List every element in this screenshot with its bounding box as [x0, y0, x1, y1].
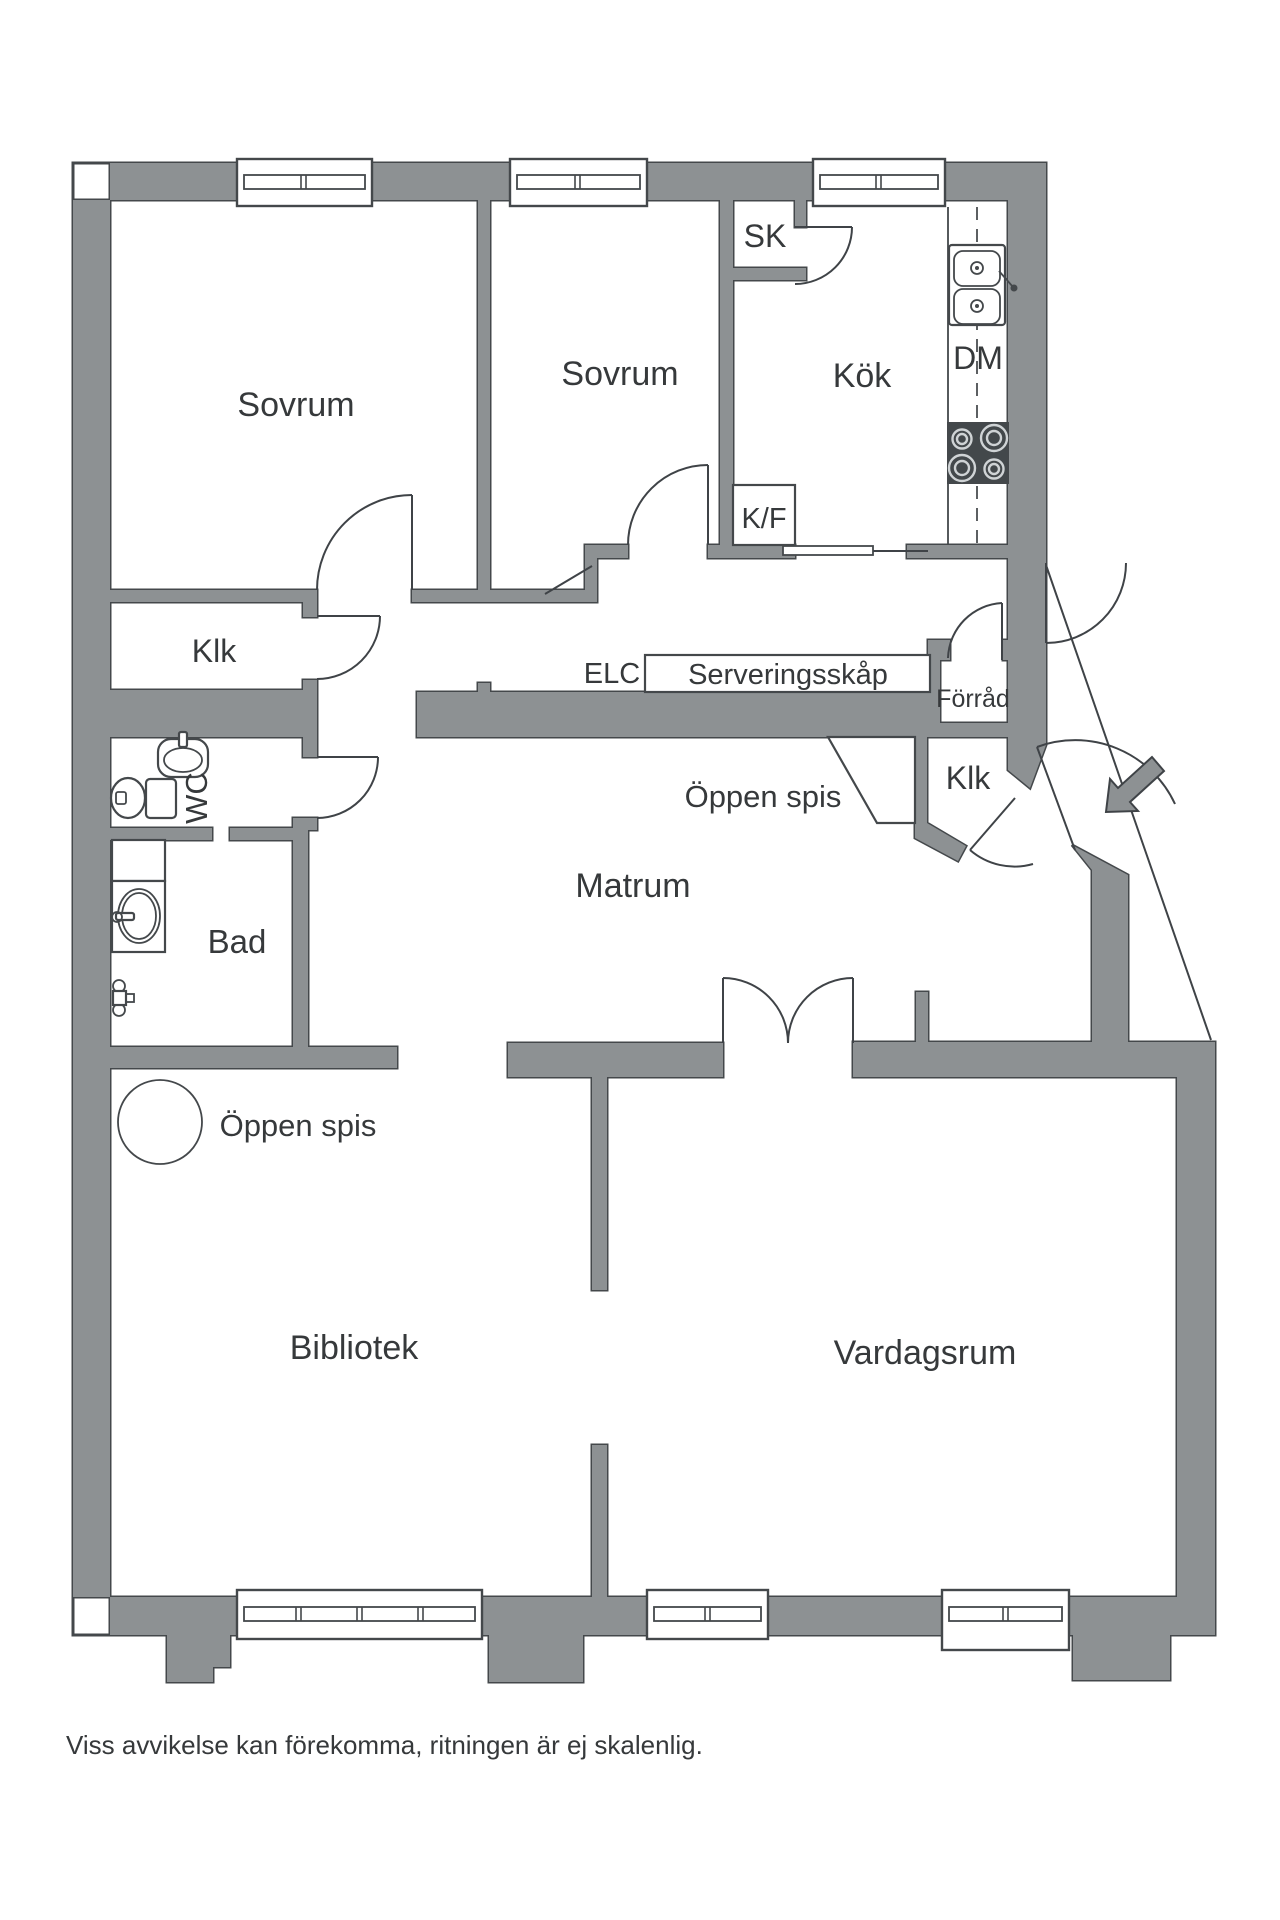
- door-icon: [948, 603, 1002, 660]
- stove-icon: [948, 423, 1008, 483]
- window-icon: [942, 1590, 1069, 1650]
- room-label-library: Bibliotek: [290, 1329, 420, 1367]
- door-icon: [628, 465, 708, 545]
- disclaimer-text: Viss avvikelse kan förekomma, ritningen …: [66, 1730, 703, 1760]
- room-label-closet-entry: Klk: [946, 760, 991, 796]
- labels: Sovrum Sovrum Kök SK DM K/F Klk ELC Serv…: [66, 218, 1016, 1760]
- door-icon: [317, 757, 378, 818]
- room-label-wc: WC: [179, 772, 214, 824]
- mixer-valve-icon: [113, 980, 134, 1016]
- floorplan-canvas: Sovrum Sovrum Kök SK DM K/F Klk ELC Serv…: [0, 0, 1280, 1920]
- vanity-basin-icon: [112, 840, 165, 952]
- room-label-bedroom-2: Sovrum: [561, 355, 678, 393]
- label-serving-cabinet: Serveringsskåp: [688, 659, 888, 691]
- label-sk-closet: SK: [744, 218, 787, 254]
- door-icon: [1046, 563, 1126, 643]
- door-icon: [317, 495, 412, 590]
- label-fireplace-matrum: Öppen spis: [685, 779, 842, 814]
- door-icon: [970, 798, 1033, 867]
- room-label-kitchen: Kök: [833, 357, 893, 395]
- entrance-door-icon: [1037, 740, 1175, 850]
- double-door-icon: [723, 978, 853, 1043]
- door-icon: [317, 616, 380, 679]
- window-icon: [647, 1590, 768, 1639]
- window-icon: [237, 159, 372, 206]
- window-icon: [813, 159, 945, 206]
- window-icon: [510, 159, 647, 206]
- washbasin-icon: [158, 732, 208, 777]
- window-icon: [237, 1590, 482, 1639]
- label-dishwasher: DM: [953, 340, 1003, 376]
- label-fridge-freezer: K/F: [741, 503, 786, 535]
- room-label-storage: Förråd: [936, 685, 1010, 713]
- label-fireplace-bibliotek: Öppen spis: [220, 1108, 377, 1143]
- room-label-closet-hall: Klk: [192, 633, 237, 669]
- doors: [317, 227, 1211, 1043]
- toilet-icon: [111, 778, 176, 818]
- fireplace-icon: [118, 1080, 202, 1164]
- label-elc: ELC: [584, 658, 640, 690]
- room-label-bedroom-1: Sovrum: [237, 386, 354, 424]
- room-label-dining: Matrum: [575, 867, 690, 905]
- room-label-bathroom: Bad: [208, 923, 267, 960]
- room-label-living-room: Vardagsrum: [834, 1334, 1017, 1372]
